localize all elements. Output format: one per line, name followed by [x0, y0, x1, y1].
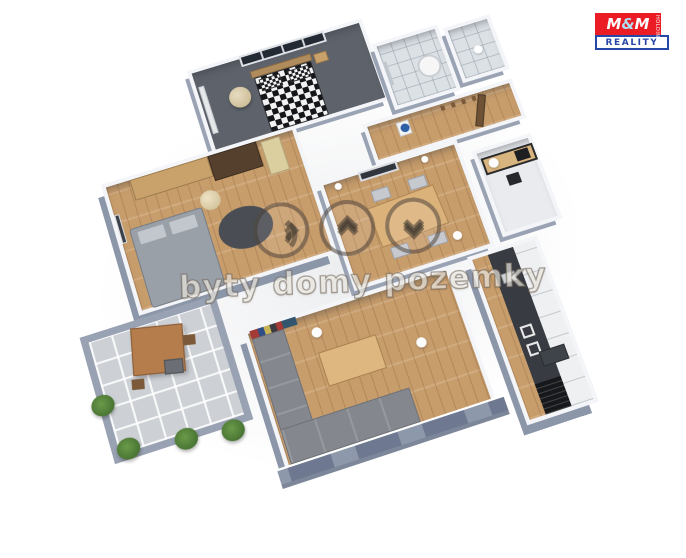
round-rug	[213, 199, 279, 255]
logo-holding-text: HOLDING	[654, 15, 660, 42]
chair	[506, 172, 522, 186]
nightstand	[313, 50, 330, 64]
mirror	[382, 61, 394, 85]
chair	[390, 242, 412, 259]
render-canvas: byty domy pozemky M&M HOLDING REALITY	[0, 0, 686, 514]
chair	[131, 378, 144, 390]
ceiling-light	[472, 44, 483, 55]
plant	[114, 435, 142, 463]
water-heater	[414, 52, 444, 80]
ceiling-light	[415, 336, 428, 349]
mm-reality-logo: M&M HOLDING REALITY	[595, 13, 671, 50]
open-door	[475, 94, 486, 127]
coat-hooks	[440, 94, 481, 111]
chair	[182, 334, 195, 346]
ceiling-light	[452, 230, 464, 241]
ceiling-light	[310, 326, 323, 339]
coffee-table	[318, 334, 387, 387]
plant	[172, 425, 201, 453]
room-dining	[318, 140, 495, 291]
plant	[89, 392, 117, 419]
round-lamp	[226, 84, 253, 110]
plant	[219, 416, 248, 444]
room-bedroom-2	[101, 125, 338, 316]
wall-picture	[114, 214, 127, 244]
wall-sconce	[420, 155, 429, 164]
logo-mm-text: M&M	[607, 17, 650, 32]
radiator	[198, 86, 219, 135]
chair	[427, 231, 449, 248]
bistro-table	[164, 358, 184, 375]
floor-plan	[42, 0, 633, 547]
logo-red-box: M&M HOLDING	[595, 13, 661, 35]
wall-picture	[358, 161, 400, 182]
shelf	[260, 136, 290, 175]
room-balcony	[80, 295, 254, 464]
wall-sconce	[334, 182, 343, 191]
